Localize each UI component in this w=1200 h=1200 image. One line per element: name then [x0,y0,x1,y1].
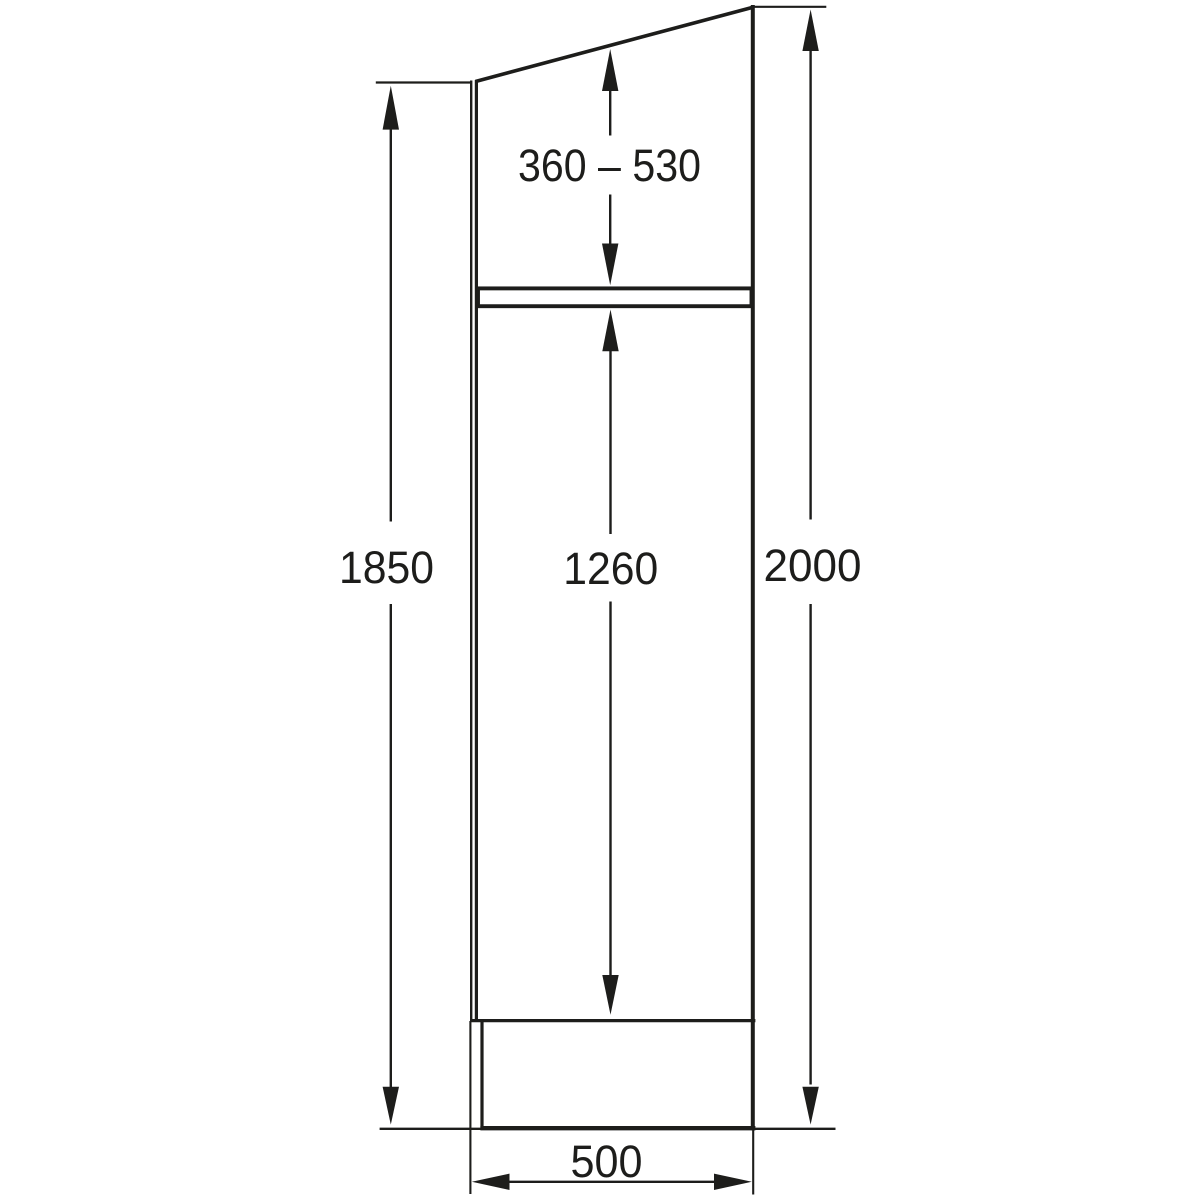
svg-text:500: 500 [571,1136,643,1187]
svg-text:360 – 530: 360 – 530 [518,140,701,191]
svg-text:1260: 1260 [563,543,658,594]
svg-text:2000: 2000 [764,540,862,591]
svg-text:1850: 1850 [339,542,434,593]
